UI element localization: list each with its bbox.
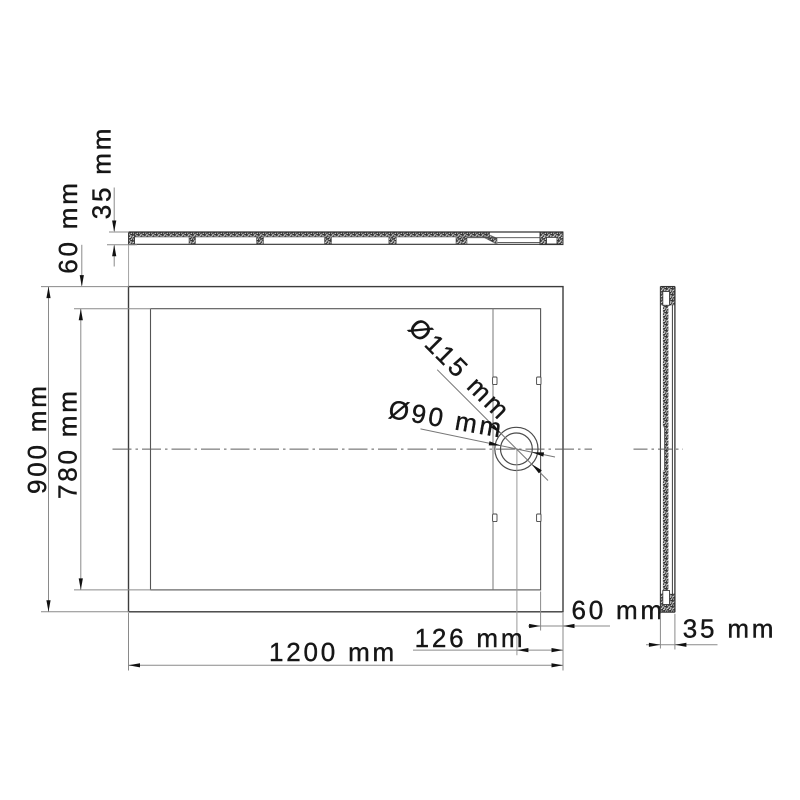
svg-text:900 mm: 900 mm xyxy=(22,383,52,494)
svg-text:126 mm: 126 mm xyxy=(415,623,526,653)
svg-text:1200 mm: 1200 mm xyxy=(269,637,397,667)
svg-text:780 mm: 780 mm xyxy=(53,388,83,499)
svg-text:35 mm: 35 mm xyxy=(683,613,776,643)
svg-text:60 mm: 60 mm xyxy=(53,180,83,273)
svg-text:60 mm: 60 mm xyxy=(572,595,665,625)
svg-text:35 mm: 35 mm xyxy=(86,126,116,219)
